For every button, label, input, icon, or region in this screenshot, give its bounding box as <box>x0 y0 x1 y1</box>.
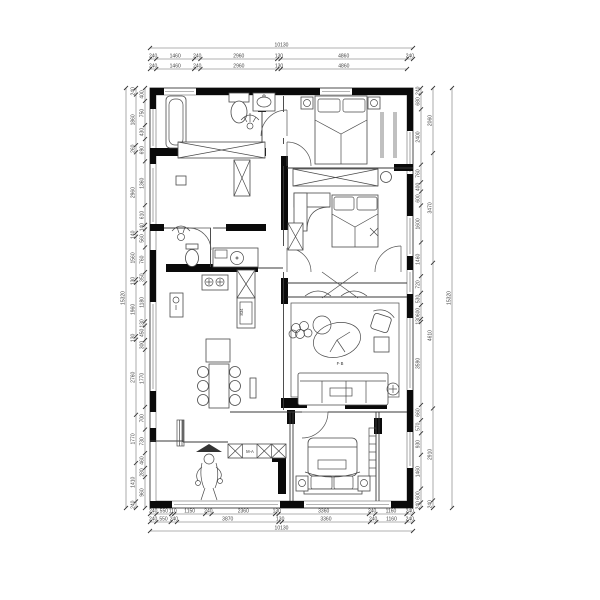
shoe-cabinet-label: M-A <box>246 449 254 454</box>
dimension-label: 760 <box>416 169 422 178</box>
dimension-label: 530 <box>416 295 422 304</box>
toilet-icon <box>186 244 199 267</box>
dimension-label: 750 <box>140 109 146 118</box>
dimension-label: 560 <box>140 234 146 243</box>
dimension-label: 1460 <box>170 54 181 60</box>
dimension-label: 130 <box>416 316 422 325</box>
dimension-label: 430 <box>140 128 146 137</box>
washbasin-icon <box>253 93 275 111</box>
dimension-label: 2760 <box>131 371 137 382</box>
cabinet-icon <box>250 378 256 398</box>
dimension-label: 300 <box>140 341 146 350</box>
dimension-label: 130 <box>276 517 285 523</box>
bedroom2-right-door-icon <box>375 246 401 272</box>
shoe-cabinet-icon <box>228 444 286 458</box>
plant-icon <box>289 322 312 339</box>
dimension-label: 570 <box>416 422 422 431</box>
floor-lamp-icon <box>387 383 399 395</box>
dimension-label: 1410 <box>131 476 137 487</box>
dimension-label: 1460 <box>170 64 181 70</box>
dimension-label: 3360 <box>318 509 329 515</box>
bedroom1-group <box>293 96 396 186</box>
dimension-label: 1160 <box>386 517 397 523</box>
dimension-label: 260 <box>131 144 137 153</box>
dimension-label: 730 <box>140 437 146 446</box>
dimension-label: 550 <box>160 509 169 515</box>
cooktop-icon <box>202 275 228 290</box>
dimension-label: 2400 <box>416 131 422 142</box>
double-bed-icon <box>315 96 367 164</box>
dimension-label: 660 <box>416 408 422 417</box>
dimension-label: 140 <box>131 230 137 239</box>
floor-plan-page: F·B 834 M-A 1013024014602402960130486024… <box>0 0 600 600</box>
dimension-label: 3870 <box>222 517 233 523</box>
dimension-label: 2960 <box>233 64 244 70</box>
lounge-chair-icon <box>309 316 364 363</box>
dimension-label: 240 <box>170 517 179 523</box>
dimension-label: 130 <box>131 277 137 286</box>
dimension-label: 240 <box>149 517 158 523</box>
double-bed-icon <box>304 438 362 494</box>
dimension-label: 240 <box>416 501 422 510</box>
dimension-label: 240 <box>193 54 202 60</box>
nightstand-icon <box>358 476 370 491</box>
dimension-label: 240 <box>204 509 213 515</box>
dimension-label: 600 <box>416 308 422 317</box>
tall-cabinet-icon <box>237 270 255 328</box>
side-table-icon <box>374 337 389 352</box>
toilet-icon <box>229 93 249 123</box>
dimension-label: 400 <box>416 183 422 192</box>
dimension-label: 240 <box>131 87 137 96</box>
nightstand-icon <box>368 97 380 109</box>
dimension-label: 4610 <box>427 330 433 341</box>
dimension-label: 240 <box>149 509 158 515</box>
dimension-label: 15320 <box>447 291 453 305</box>
dimension-label: 3470 <box>428 202 434 213</box>
dimension-label: 1770 <box>140 373 146 384</box>
statue-figure-icon <box>196 444 223 500</box>
stool-icon <box>381 172 392 183</box>
curtain-track-icon <box>381 112 396 158</box>
dimension-label: 4860 <box>338 64 349 70</box>
dimension-label: 700 <box>140 414 146 423</box>
dimension-label: 720 <box>416 280 422 289</box>
dimension-label: 680 <box>416 97 422 106</box>
dimension-label: 690 <box>140 146 146 155</box>
dimension-label: 450 <box>140 328 146 337</box>
dimension-label: 110 <box>169 509 177 515</box>
dimension-label: 130 <box>275 64 284 70</box>
dimension-label: 4860 <box>338 54 349 60</box>
dimension-label: 610 <box>140 211 146 220</box>
bedroom2-left-door-icon <box>287 248 311 272</box>
entry-group <box>177 420 286 500</box>
dimension-label: 240 <box>149 64 158 70</box>
dimension-label: 2910 <box>428 449 434 460</box>
dimension-label: 1160 <box>386 509 397 515</box>
dimension-label: 3360 <box>320 517 331 523</box>
dimension-label: 2060 <box>428 115 434 126</box>
dimension-label: 1460 <box>416 466 422 477</box>
dimension-label: 15320 <box>121 291 127 305</box>
nightstand-icon <box>301 97 313 109</box>
dimension-label: 10130 <box>275 43 289 49</box>
dimension-label: 240 <box>131 500 137 509</box>
dimension-label: 240 <box>406 517 415 523</box>
wardrobe-icon <box>234 160 250 196</box>
dimension-label: 600 <box>416 194 422 203</box>
kitchen-sink-icon <box>170 293 183 317</box>
bath-door-icon <box>261 110 287 136</box>
dimension-label: 1460 <box>416 254 422 265</box>
kitchen-counter-icon <box>213 248 258 267</box>
dimension-label: 130 <box>275 54 284 60</box>
bedroom1-door-icon <box>287 142 311 166</box>
living-room-group <box>289 272 399 405</box>
dimension-label: 240 <box>369 517 378 523</box>
dimension-label: 1150 <box>184 509 195 515</box>
double-bed-icon <box>332 195 378 247</box>
dimension-label: 960 <box>140 488 146 497</box>
wardrobe-icon <box>178 142 265 158</box>
bathtub-icon <box>166 96 186 148</box>
sofa-icon <box>298 373 388 405</box>
dimension-label: 280 <box>140 468 146 477</box>
curtain-icon <box>305 291 331 296</box>
bedroom3-door-icon <box>302 412 328 438</box>
dimension-label: 1360 <box>140 177 146 188</box>
dimension-label: 760 <box>140 255 146 264</box>
dimension-label: 240 <box>416 86 422 95</box>
dimension-label: 240 <box>368 509 377 515</box>
dimension-label: 130 <box>140 319 146 328</box>
dimension-label: 240 <box>406 509 415 515</box>
dimension-label: 2360 <box>238 509 249 515</box>
dining-set-icon <box>198 339 241 408</box>
dimension-label: 1180 <box>140 297 146 308</box>
dimension-label: 1860 <box>131 114 137 125</box>
dimension-label: 240 <box>428 500 434 509</box>
dimension-label: 930 <box>416 440 422 449</box>
dimension-label: 600 <box>416 491 422 500</box>
bedroom2-group <box>288 193 378 250</box>
dimension-label: 130 <box>131 334 137 343</box>
dimension-label: 350 <box>140 273 146 282</box>
dimension-label: 1560 <box>131 252 137 263</box>
wardrobe-icon <box>293 169 378 186</box>
dimension-label: 460 <box>140 456 146 465</box>
dimension-label: 10130 <box>275 526 289 532</box>
dimension-label: 130 <box>273 509 282 515</box>
dimension-label: 140 <box>140 223 146 232</box>
tv-cabinet-icon <box>176 176 186 185</box>
armchair-icon <box>368 307 395 334</box>
wardrobe-icon <box>288 223 303 250</box>
bedroom3-group <box>296 428 376 494</box>
dimension-label: 240 <box>193 64 202 70</box>
dimension-label: 3590 <box>416 358 422 369</box>
dimension-label: 2960 <box>233 54 244 60</box>
living-room-label: F·B <box>337 361 344 366</box>
radiator-icon <box>369 428 376 476</box>
dimension-label: 2960 <box>131 187 137 198</box>
dimension-label: 1770 <box>131 433 137 444</box>
dimension-label: 240 <box>406 54 415 60</box>
dimension-label: 400 <box>140 90 146 99</box>
nightstand-icon <box>296 476 308 491</box>
dimension-label: 240 <box>149 54 158 60</box>
cabinet-dimension-label: 834 <box>239 308 244 316</box>
dimension-label: 550 <box>159 517 168 523</box>
dimension-label: 1960 <box>131 304 137 315</box>
dimension-label: 1600 <box>416 218 422 229</box>
floor-plan-drawing: F·B 834 M-A 1013024014602402960130486024… <box>0 0 600 600</box>
